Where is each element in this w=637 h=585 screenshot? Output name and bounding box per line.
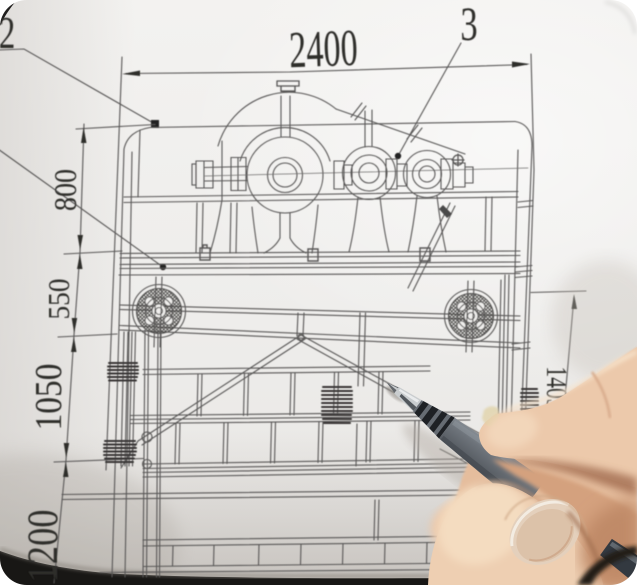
svg-text:1200: 1200 [18,509,66,582]
svg-text:3: 3 [460,0,477,51]
svg-text:1050: 1050 [27,364,69,431]
svg-text:550: 550 [42,279,76,320]
svg-text:800: 800 [47,169,83,211]
